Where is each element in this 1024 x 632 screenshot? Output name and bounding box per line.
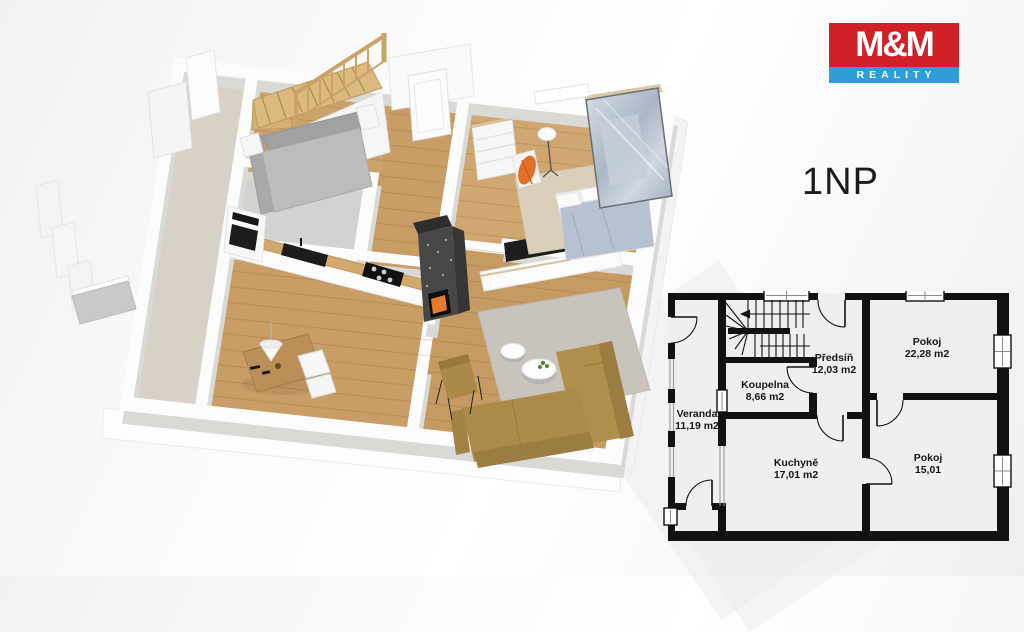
coffee-table-small xyxy=(501,344,525,363)
floor-label: 1NP xyxy=(802,161,902,205)
room-label: Kuchyně xyxy=(774,457,819,469)
room-area: 22,28 m2 xyxy=(905,348,950,360)
room-label: Koupelna xyxy=(741,379,789,391)
door-panel xyxy=(408,69,451,141)
room-area: 8,66 m2 xyxy=(746,391,785,403)
room-label: Veranda xyxy=(677,408,718,420)
room-area: 11,19 m2 xyxy=(675,420,719,432)
floorplan-2d: Veranda 11,19 m2 Koupelna 8,66 m2 Předsí… xyxy=(662,291,1014,547)
mirror-wardrobe xyxy=(584,84,672,208)
room-label: Pokoj xyxy=(914,452,943,464)
room-label: Pokoj xyxy=(913,336,942,348)
room-area: 17,01 m2 xyxy=(774,469,819,481)
mm-reality-logo: M&M REALITY xyxy=(829,23,959,83)
coffee-table-large xyxy=(522,359,556,384)
logo-tagline: REALITY xyxy=(829,67,959,83)
room-area: 15,01 xyxy=(915,464,941,476)
room-label: Předsíň xyxy=(815,352,854,364)
page-canvas: M&M REALITY 1NP xyxy=(0,0,1024,576)
dresser xyxy=(472,118,518,180)
oven-column xyxy=(224,206,266,262)
room-area: 12,03 m2 xyxy=(812,364,857,376)
logo-brand: M&M xyxy=(829,23,959,67)
